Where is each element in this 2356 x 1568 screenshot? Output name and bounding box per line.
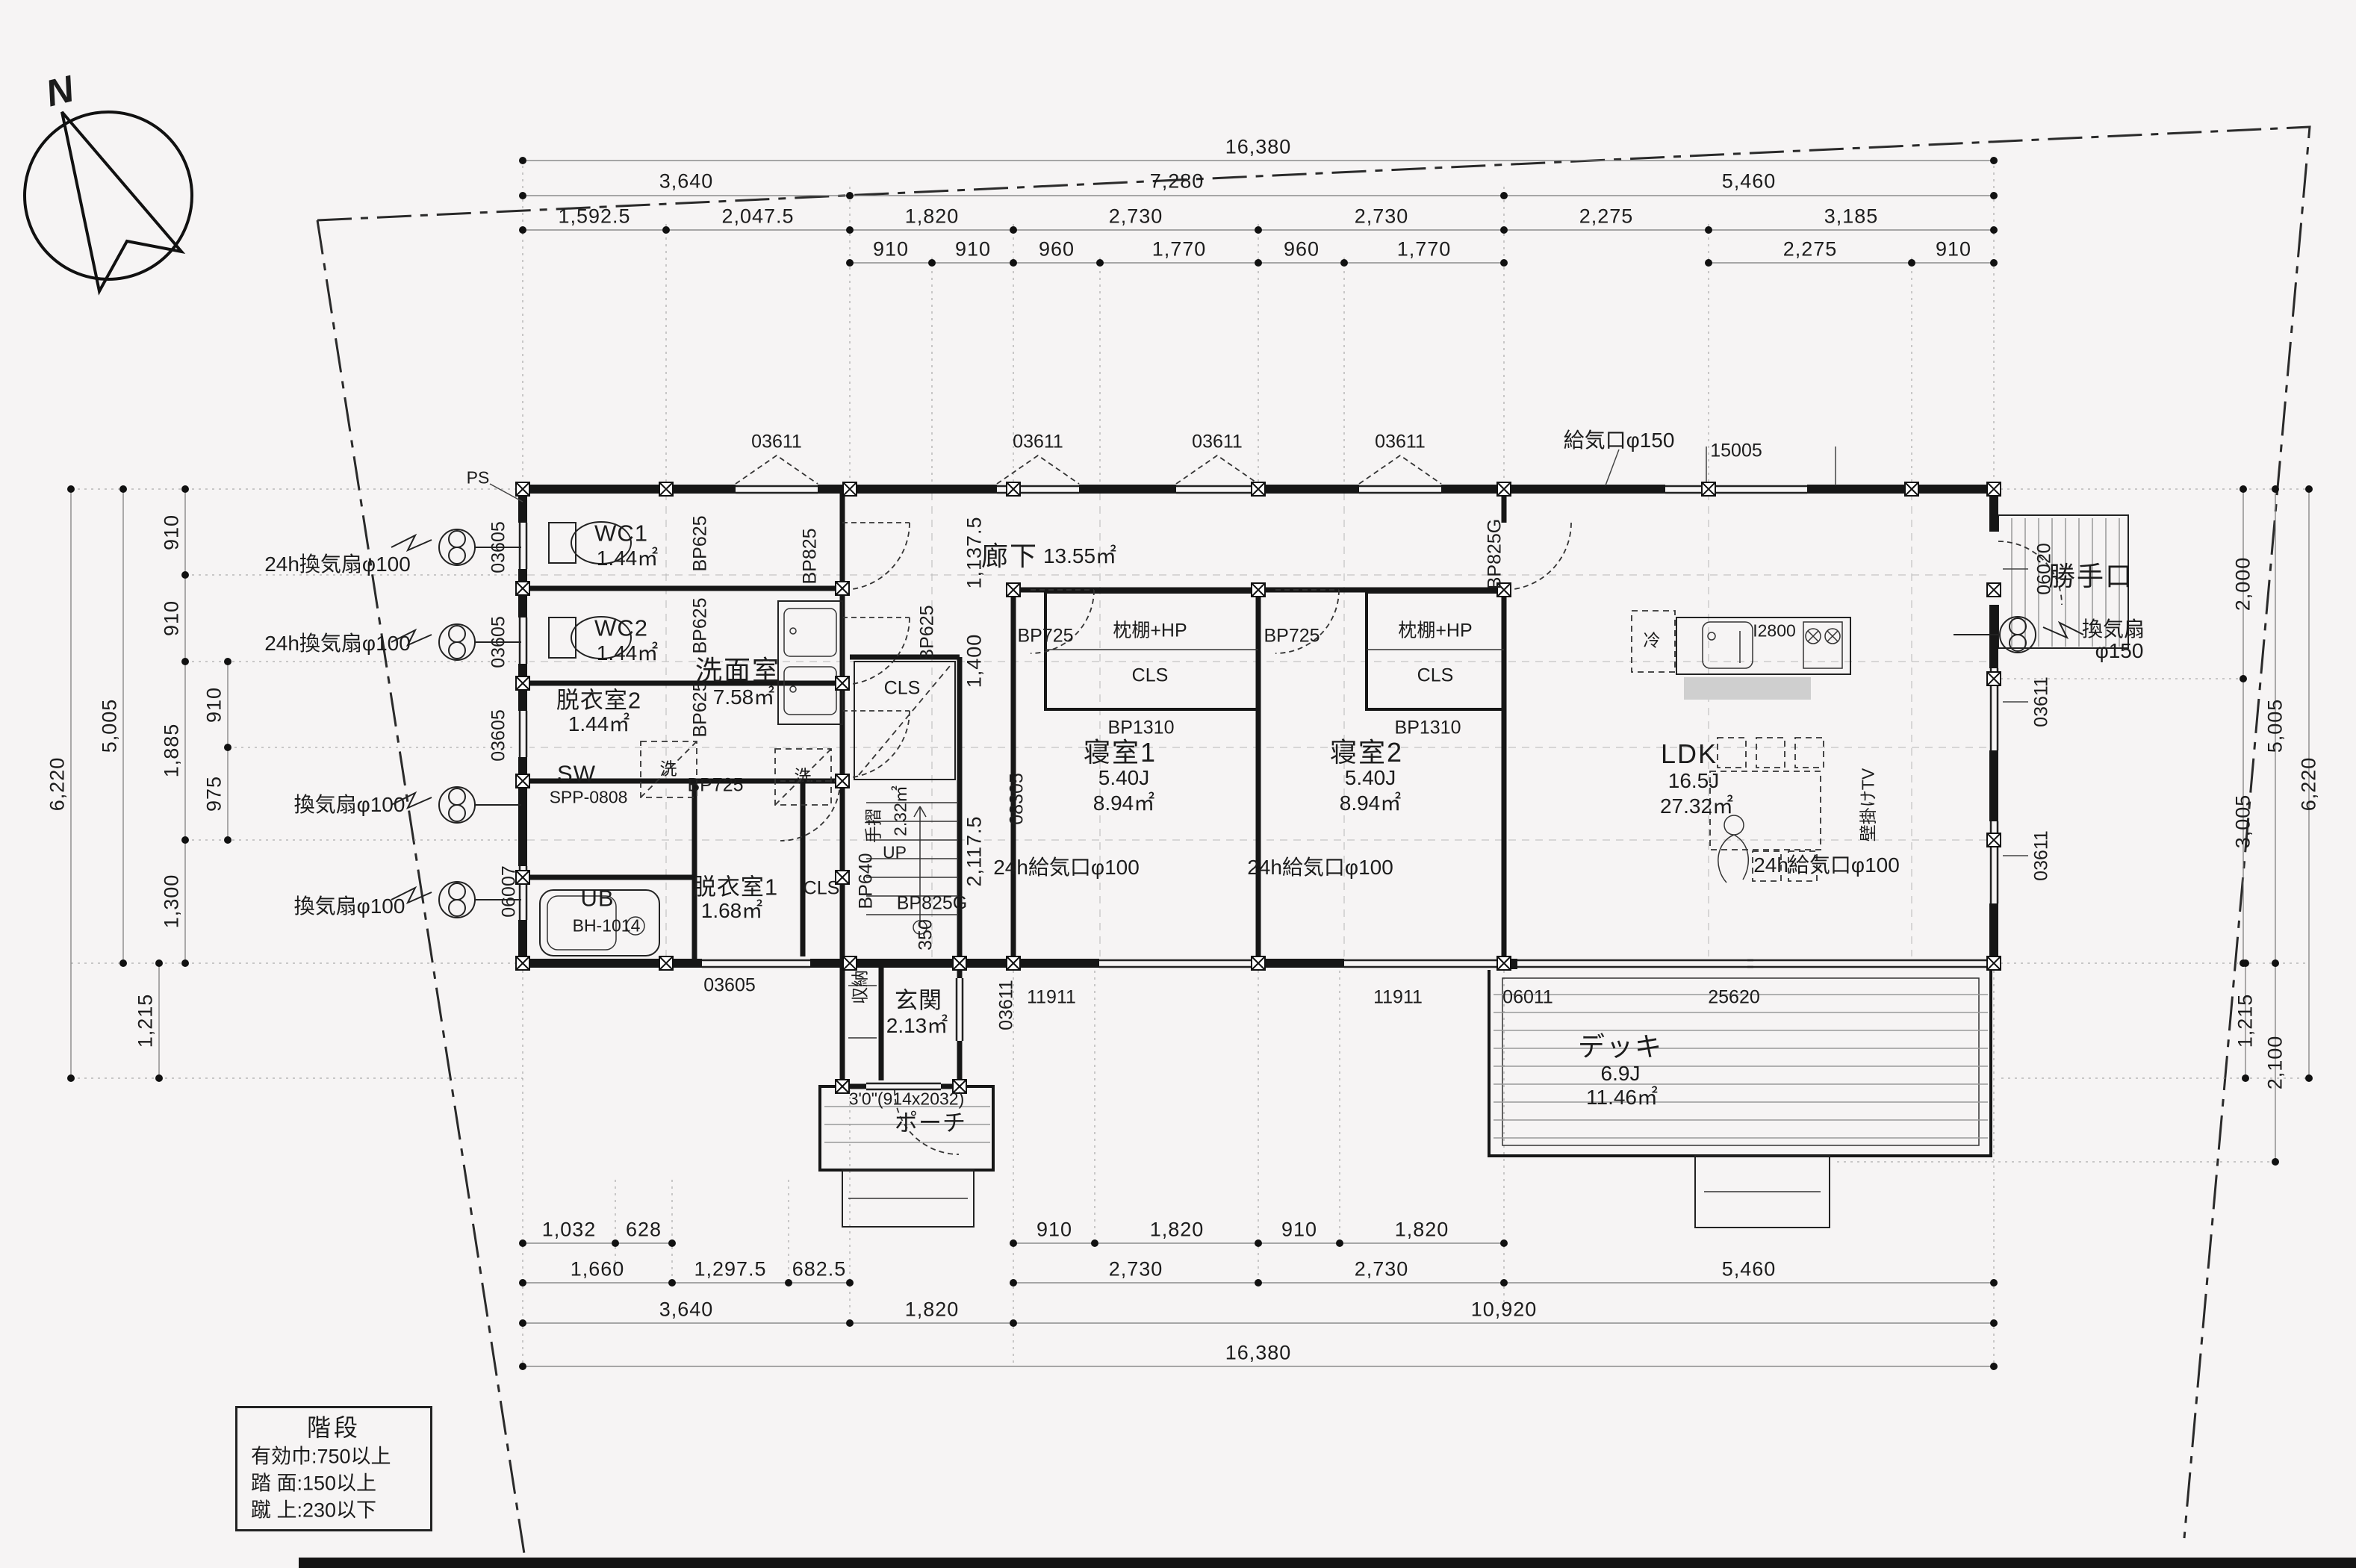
dim-inner: 2,117.5 — [965, 815, 985, 886]
room-wc1-area: 1.44㎡ — [597, 548, 659, 569]
dim-top: 2,730 — [1355, 207, 1409, 227]
code-03611: 03611 — [1192, 433, 1243, 452]
code-11911: 11911 — [1373, 989, 1423, 1007]
code-06007: 06007 — [500, 865, 519, 918]
stairs-area: 2.32㎡ — [892, 785, 910, 836]
room-washroom-area: 7.58㎡ — [713, 687, 775, 708]
dim-left: 910 — [162, 514, 182, 550]
code-03611: 03611 — [751, 433, 802, 452]
code-bp725: BP725 — [687, 777, 743, 795]
dim-top: 2,047.5 — [721, 207, 794, 227]
entrance-storage: 収納 — [852, 970, 869, 1004]
room-backdoor: 勝手口 — [2048, 563, 2133, 590]
code-03605: 03605 — [703, 977, 756, 995]
fan150-label: φ150 — [2095, 641, 2144, 662]
stairs-up: UP — [883, 844, 907, 862]
room-dressing2: 脱衣室2 — [556, 689, 641, 712]
code-06020: 06020 — [2036, 543, 2054, 595]
code-bp625: BP625 — [919, 605, 937, 661]
code-bp625: BP625 — [691, 597, 710, 653]
code-bp825g: BP825G — [1486, 519, 1505, 590]
supply24h-label: 24h給気口φ100 — [1247, 857, 1393, 878]
code-03605: 03605 — [490, 709, 509, 762]
dim-left: 975 — [205, 776, 225, 812]
stair-legend-title: 階段 — [307, 1409, 361, 1443]
code-03611: 03611 — [1013, 433, 1063, 452]
code-03611: 03611 — [1375, 433, 1426, 452]
dim-bottom: 3,640 — [659, 1300, 714, 1320]
bedroom1-closet: CLS — [1132, 667, 1169, 685]
dim-top: 2,730 — [1109, 207, 1163, 227]
supply24h-label: 24h給気口φ100 — [993, 857, 1140, 878]
dim-top: 960 — [1039, 240, 1075, 260]
stair-legend: 階段 有効巾:750以上 踏 面:150以上 蹴 上:230以下 — [235, 1406, 432, 1531]
kitchen-code: I2800 — [1753, 623, 1796, 640]
north-compass-icon — [25, 112, 192, 291]
floor-plan-sheet: N 16,380 3,640 7,280 5,460 1,592.5 2,047… — [0, 0, 2356, 1568]
room-bedroom1-area: 8.94㎡ — [1093, 793, 1155, 814]
fan-label: 換気扇φ100 — [294, 896, 405, 917]
kitchen — [1632, 611, 1850, 700]
dim-right: 1,215 — [2236, 994, 2256, 1048]
ldk-fridge: 冷 — [1644, 632, 1661, 650]
extension-lines — [71, 166, 2309, 1363]
dim-bottom: 910 — [1281, 1220, 1317, 1240]
code-08305: 08305 — [1008, 773, 1027, 825]
room-dressing1-area: 1.68㎡ — [701, 900, 763, 921]
dim-right: 2,000 — [2234, 557, 2254, 612]
room-bedroom2-area: 8.94㎡ — [1340, 793, 1402, 814]
code-03611: 03611 — [998, 980, 1016, 1030]
fan-label: 換気扇φ100 — [294, 794, 405, 815]
room-ldk: LDK — [1661, 741, 1718, 768]
fan24h-label: 24h換気扇φ100 — [264, 554, 411, 575]
stair-legend-row: 蹴 上:230以下 — [251, 1494, 376, 1523]
dim-left: 1,885 — [162, 724, 182, 778]
room-bedroom1: 寝室1 — [1084, 739, 1157, 766]
washer-label: 洗 — [795, 768, 812, 785]
dim-bottom: 10,920 — [1471, 1300, 1538, 1320]
room-wc2-area: 1.44㎡ — [597, 643, 659, 664]
dim-bottom: 910 — [1036, 1220, 1072, 1240]
room-bedroom2-size: 5.40J — [1345, 768, 1396, 788]
dim-bottom: 5,460 — [1722, 1260, 1777, 1280]
dim-left: 6,220 — [48, 757, 68, 812]
bedroom1-shelf: 枕棚+HP — [1113, 622, 1187, 641]
dim-top: 910 — [1936, 240, 1971, 260]
code-bp725: BP725 — [1264, 627, 1320, 646]
room-hallway: 廊下 — [981, 543, 1038, 570]
dim-top: 960 — [1284, 240, 1320, 260]
washer-label: 洗 — [660, 761, 677, 778]
dim-top: 1,770 — [1152, 240, 1207, 260]
code-06011: 06011 — [1502, 989, 1553, 1007]
code-03605: 03605 — [490, 521, 509, 573]
dim-top: 3,185 — [1824, 207, 1879, 227]
dim-left: 910 — [205, 687, 225, 723]
room-porch: ポーチ — [895, 1112, 966, 1135]
scan-edge-bar — [299, 1558, 2356, 1568]
stair-legend-row: 踏 面:150以上 — [251, 1467, 376, 1496]
room-entrance-area: 2.13㎡ — [886, 1015, 948, 1036]
dim-top: 1,820 — [905, 207, 960, 227]
room-sw-model: SPP-0808 — [550, 789, 628, 806]
dim-bottom: 682.5 — [792, 1260, 847, 1280]
dim-bottom: 1,820 — [905, 1300, 960, 1320]
ldk-wall-tv: 壁掛けTV — [1860, 768, 1877, 841]
room-hallway-area: 13.55㎡ — [1043, 546, 1116, 567]
room-wc1: WC1 — [594, 522, 648, 545]
dim-right: 5,005 — [2266, 699, 2286, 753]
bedroom2-closet: CLS — [1417, 667, 1454, 685]
code-03611: 03611 — [2033, 676, 2051, 727]
room-ldk-area: 27.32㎡ — [1660, 796, 1733, 817]
site-boundary — [317, 127, 2310, 1568]
dimension-lines — [67, 157, 2313, 1370]
dim-bottom: 1,820 — [1150, 1220, 1205, 1240]
dim-left: 910 — [162, 600, 182, 636]
dim-top: 5,460 — [1722, 172, 1777, 192]
dim-left: 1,215 — [136, 994, 156, 1048]
room-ub: UB — [580, 887, 614, 910]
code-11911: 11911 — [1027, 989, 1076, 1007]
room-deck-area: 11.46㎡ — [1586, 1087, 1658, 1108]
room-dressing1: 脱衣室1 — [693, 876, 778, 899]
room-ldk-size: 16.5J — [1668, 771, 1720, 791]
dim-top: 2,275 — [1783, 240, 1838, 260]
code-bp825g: BP825G — [897, 895, 968, 913]
dim-bottom: 1,820 — [1395, 1220, 1449, 1240]
fan150-label: 換気扇 — [2082, 619, 2145, 640]
dim-bottom: 2,730 — [1109, 1260, 1163, 1280]
dim-left: 1,300 — [162, 874, 182, 929]
person-figure — [1718, 815, 1748, 883]
room-wc2: WC2 — [594, 617, 648, 640]
dim-top: 910 — [873, 240, 909, 260]
dim-inner: 1,400 — [965, 634, 985, 688]
room-bedroom1-size: 5.40J — [1098, 768, 1150, 788]
code-25620: 25620 — [1708, 989, 1760, 1007]
closet-cls: CLS — [804, 880, 840, 898]
closet-cls: CLS — [884, 679, 921, 698]
dim-left: 5,005 — [100, 699, 120, 753]
entrance-door-size: 3'0"(914x2032) — [849, 1091, 965, 1108]
dim-top: 3,640 — [659, 172, 714, 192]
code-bp625: BP625 — [691, 681, 710, 737]
dim-right: 2,100 — [2266, 1036, 2286, 1090]
dim-right: 3,005 — [2234, 794, 2254, 849]
room-ub-model: BH-1014 — [573, 918, 641, 935]
code-bp725: BP725 — [1017, 627, 1073, 646]
stairs-handrail: 手摺 — [865, 809, 883, 843]
room-sw: SW — [557, 762, 596, 785]
code-bp1310: BP1310 — [1108, 719, 1175, 738]
code-03605: 03605 — [490, 616, 509, 668]
room-deck: デッキ — [1578, 1033, 1663, 1060]
code-15005: 15005 — [1710, 442, 1762, 461]
dim-top: 1,592.5 — [558, 207, 630, 227]
dim-top-total: 16,380 — [1225, 137, 1292, 158]
dim-bottom: 1,032 — [542, 1220, 597, 1240]
plan-drawing — [0, 0, 2356, 1568]
dim-350: 350 — [917, 919, 936, 951]
dim-top: 910 — [955, 240, 991, 260]
dim-bottom-total: 16,380 — [1225, 1343, 1292, 1363]
supply24h-label: 24h給気口φ100 — [1753, 855, 1900, 876]
code-bp1310: BP1310 — [1395, 719, 1461, 738]
code-bp825: BP825 — [801, 528, 820, 584]
room-dressing2-area: 1.44㎡ — [568, 714, 630, 735]
code-bp625: BP625 — [691, 515, 710, 571]
room-washroom: 洗面室 — [695, 657, 780, 684]
dim-bottom: 1,297.5 — [694, 1260, 766, 1280]
supply150-label: 給気口φ150 — [1564, 430, 1675, 451]
bedroom2-shelf: 枕棚+HP — [1398, 622, 1472, 641]
fan24h-label: 24h換気扇φ100 — [264, 633, 411, 654]
code-03611: 03611 — [2033, 830, 2051, 881]
ps-label: PS — [467, 470, 490, 487]
room-entrance: 玄関 — [895, 989, 942, 1012]
vanity — [778, 601, 842, 724]
dim-bottom: 2,730 — [1355, 1260, 1409, 1280]
dim-top: 7,280 — [1150, 172, 1205, 192]
dim-top: 1,770 — [1397, 240, 1452, 260]
room-deck-size: 6.9J — [1601, 1063, 1641, 1084]
dim-right: 6,220 — [2299, 757, 2319, 812]
room-bedroom2: 寝室2 — [1330, 739, 1403, 766]
dim-bottom: 1,660 — [571, 1260, 625, 1280]
code-bp640: BP640 — [857, 853, 876, 909]
stair-legend-row: 有効巾:750以上 — [251, 1440, 391, 1469]
dim-bottom: 628 — [626, 1220, 662, 1240]
dim-top: 2,275 — [1579, 207, 1634, 227]
